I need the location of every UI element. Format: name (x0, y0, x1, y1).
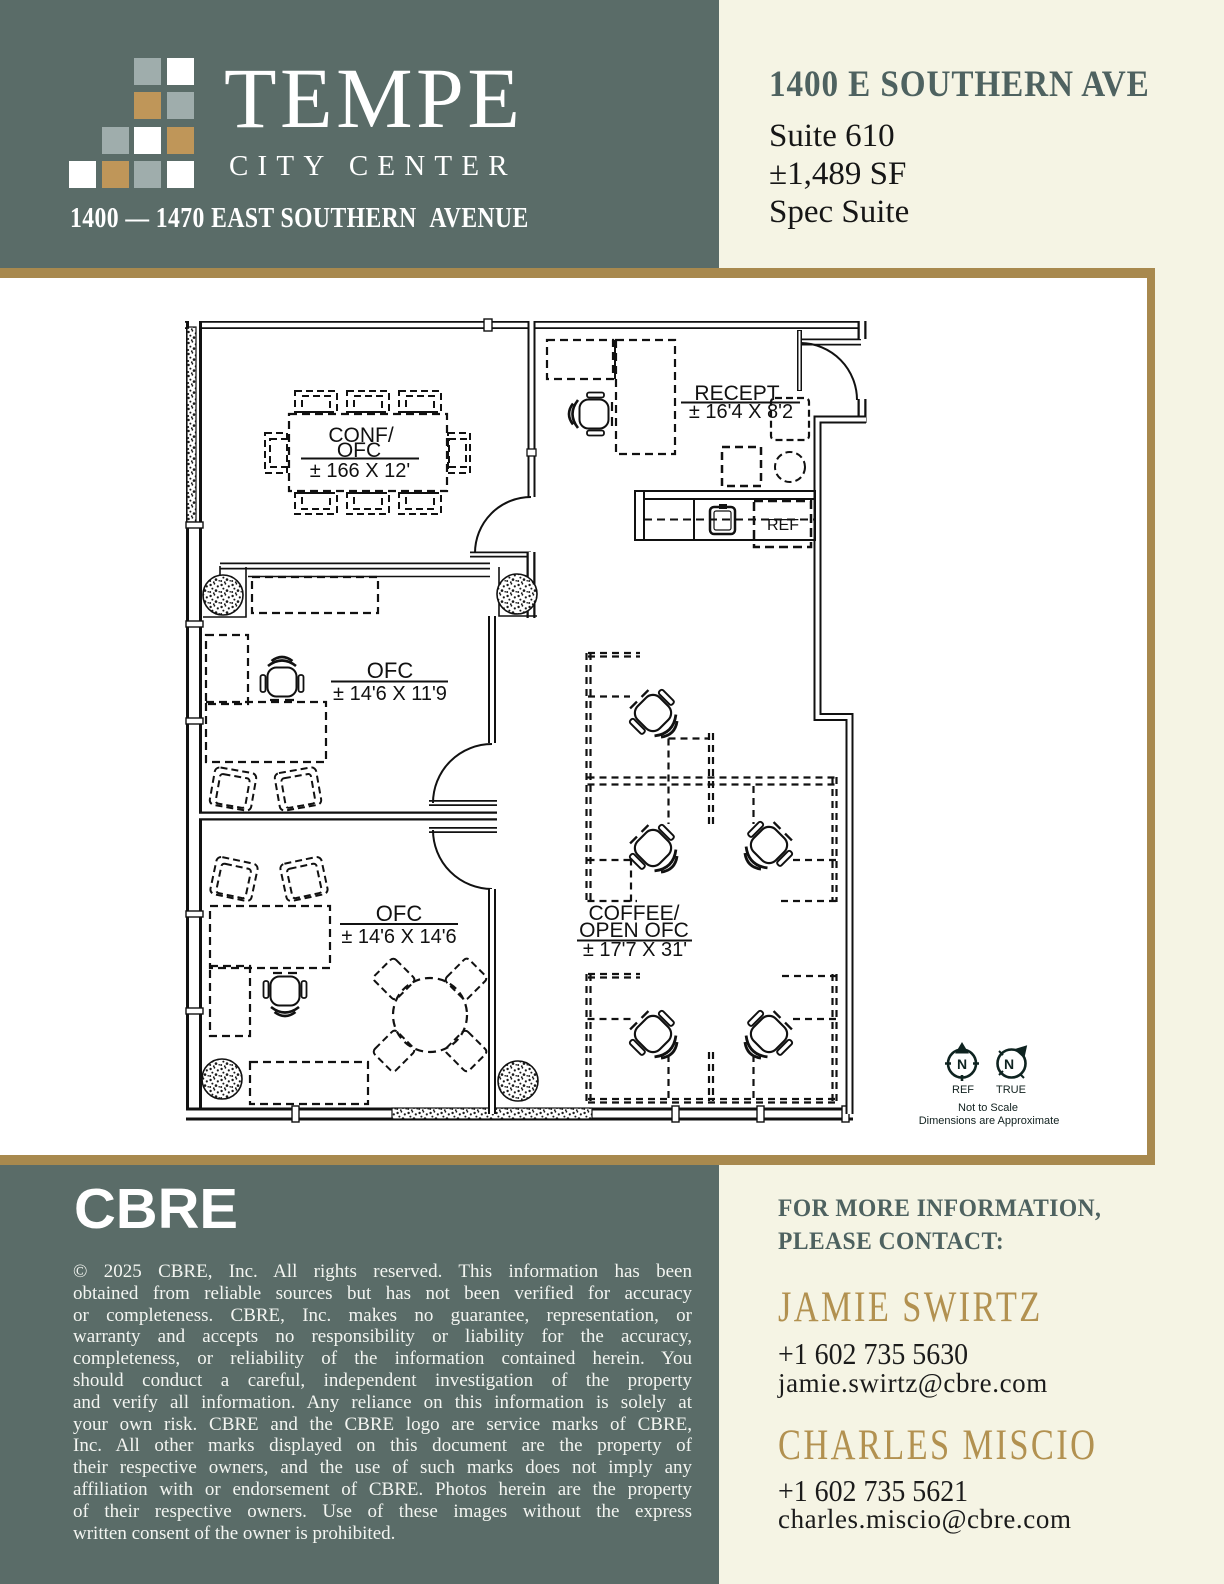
svg-text:OFC: OFC (376, 901, 423, 926)
svg-text:± 14'6 X 11'9: ± 14'6 X 11'9 (333, 683, 447, 705)
svg-text:± 166 X 12': ± 166 X 12' (310, 460, 410, 482)
svg-text:Dimensions are Approximate: Dimensions are Approximate (919, 1115, 1060, 1127)
svg-text:REF: REF (952, 1084, 974, 1096)
svg-text:Not to Scale: Not to Scale (958, 1102, 1018, 1114)
svg-text:± 14'6 X 14'6: ± 14'6 X 14'6 (341, 926, 456, 948)
svg-text:± 17'7 X 31': ± 17'7 X 31' (583, 939, 687, 961)
svg-text:N: N (957, 1056, 967, 1072)
svg-text:REF: REF (767, 517, 799, 534)
svg-text:TRUE: TRUE (996, 1084, 1026, 1096)
svg-text:± 16'4 X 8'2: ± 16'4 X 8'2 (689, 401, 793, 423)
svg-text:CBRE: CBRE (74, 1184, 238, 1234)
svg-text:N: N (1004, 1056, 1014, 1072)
svg-text:OFC: OFC (367, 658, 414, 683)
